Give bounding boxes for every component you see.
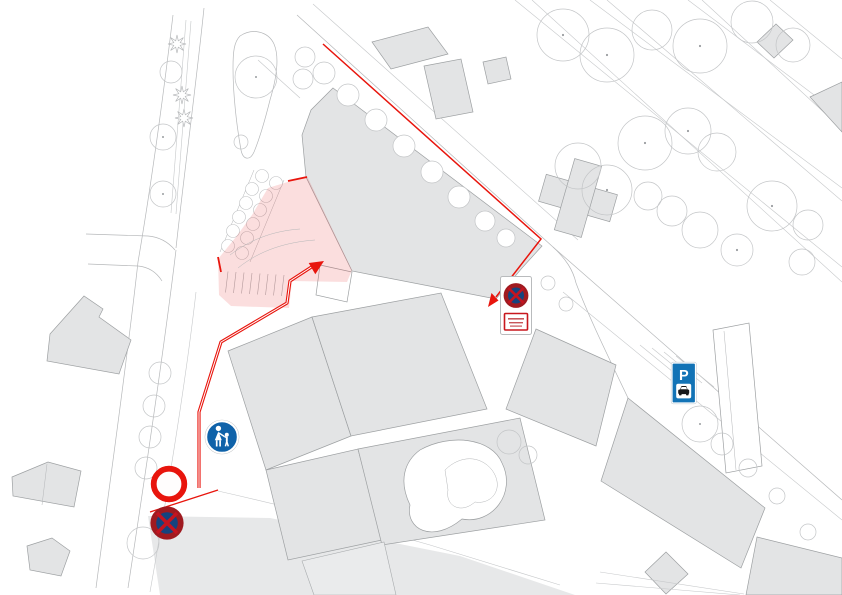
pedestrian-zone-sign <box>205 420 239 454</box>
car-icon <box>676 384 691 399</box>
no-stopping-icon <box>504 283 529 308</box>
no-stopping-sign-board <box>501 277 532 335</box>
conifer-tree-icons <box>168 35 193 127</box>
no-vehicles-sign <box>154 469 185 500</box>
parking-sign: P <box>671 362 696 404</box>
no-stopping-sign <box>150 506 183 539</box>
buildings-layer <box>12 24 842 595</box>
cross-shaped-building <box>532 152 624 244</box>
parking-letter: P <box>679 368 689 384</box>
site-plan-map: P <box>0 0 842 595</box>
additional-plate <box>505 314 528 331</box>
site-plan-page: P <box>0 0 842 595</box>
